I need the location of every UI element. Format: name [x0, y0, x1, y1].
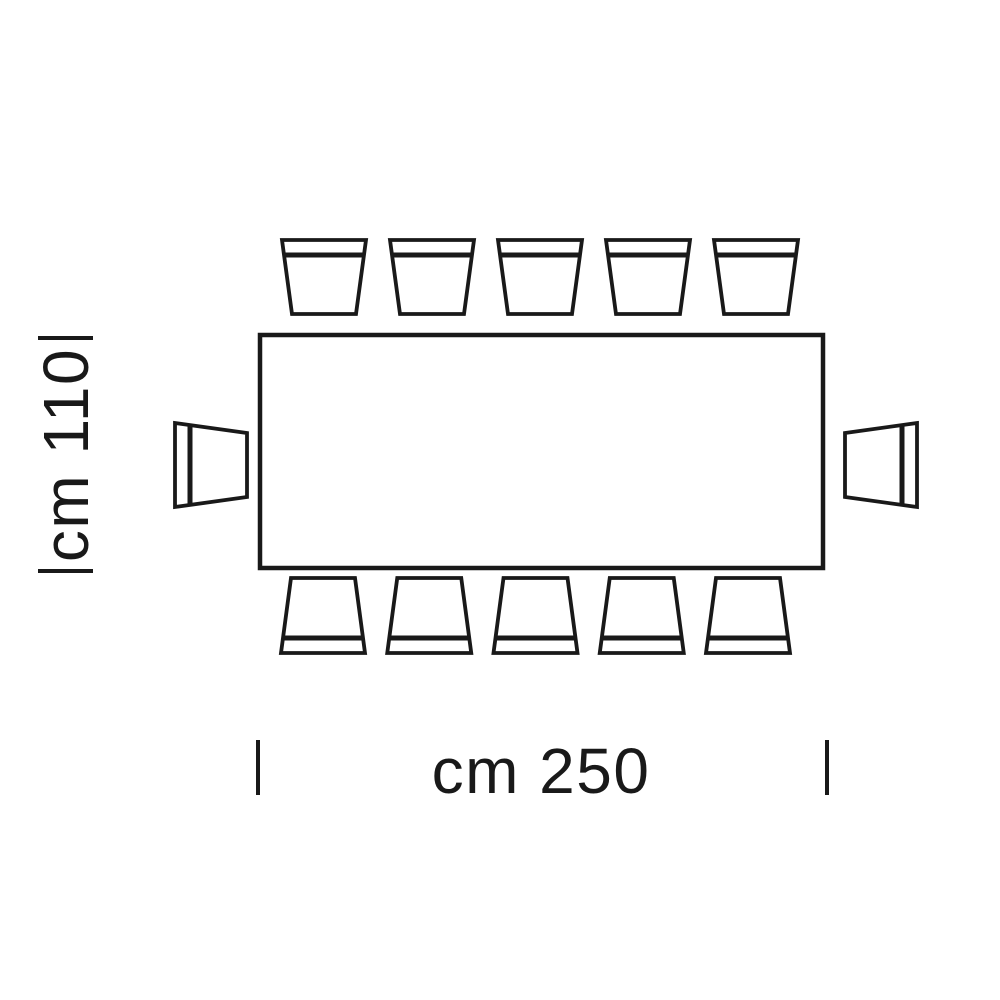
table-plan-diagram: cm 110 cm 250 — [0, 0, 1000, 1000]
width-dimension-label: cm 250 — [432, 735, 651, 807]
chair-top-4 — [606, 240, 690, 314]
chair-left-1 — [175, 423, 247, 507]
chair-bottom-3 — [494, 578, 578, 653]
diagram-svg: cm 110 cm 250 — [0, 0, 1000, 1000]
chair-bottom-2 — [387, 578, 471, 653]
table-top — [260, 335, 823, 568]
depth-dimension: cm 110 — [30, 338, 102, 571]
chair-bottom-4 — [600, 578, 684, 653]
chair-top-2 — [390, 240, 474, 314]
chair-top-5 — [714, 240, 798, 314]
chair-top-1 — [282, 240, 366, 314]
chair-bottom-5 — [706, 578, 790, 653]
chair-bottom-1 — [281, 578, 365, 653]
chair-top-3 — [498, 240, 582, 314]
width-dimension: cm 250 — [258, 735, 827, 807]
depth-dimension-label: cm 110 — [30, 348, 102, 562]
chair-right-1 — [845, 423, 917, 507]
